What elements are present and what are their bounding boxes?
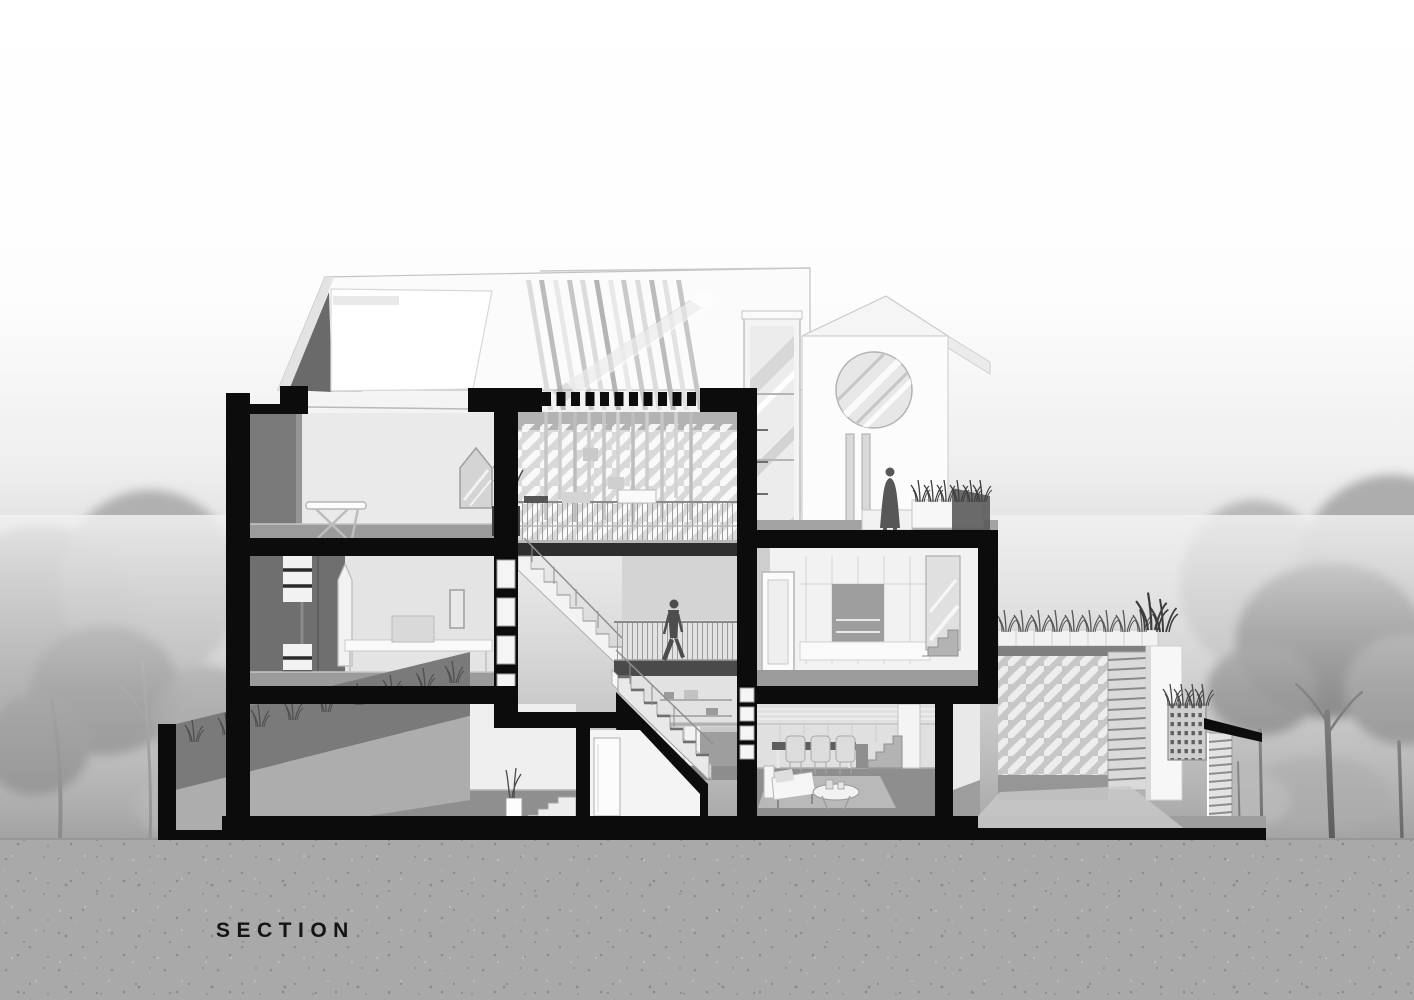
terrace-glass-panel — [952, 488, 990, 536]
section-drawing — [0, 0, 1414, 1000]
tv-niche — [832, 584, 884, 642]
ground — [0, 838, 1414, 1000]
pendant-box — [608, 477, 624, 489]
gate-post — [1208, 733, 1232, 824]
bridge-bench — [524, 496, 548, 503]
mid-slab-right — [756, 686, 998, 704]
pendant-box — [583, 448, 598, 461]
roof-eave-block — [280, 386, 308, 414]
mid-slab-left — [226, 538, 518, 556]
architectural-section-stage: SECTION — [0, 0, 1414, 1000]
bridge-gray-box — [562, 492, 590, 503]
lower-slab-left — [226, 686, 512, 704]
hall-left-wall — [576, 728, 590, 820]
dressing-room — [756, 548, 980, 686]
louver-beam-dashes — [542, 392, 696, 406]
section-title: SECTION — [216, 919, 355, 943]
dining-right-wall — [935, 704, 953, 820]
tv-panel — [392, 616, 434, 642]
base-slab — [222, 816, 978, 840]
roof-beam-right — [700, 388, 757, 412]
perforated-screen — [1168, 704, 1206, 760]
wall-frame — [450, 590, 464, 628]
bridge-white-box — [618, 490, 656, 503]
yard-wall-post — [158, 724, 176, 840]
roof-beam-left — [468, 388, 542, 412]
tower-slot-window — [846, 434, 854, 522]
hall-ceiling-slab — [494, 712, 622, 728]
garage-louver-door — [1108, 652, 1146, 790]
tower-slot-window — [862, 434, 870, 522]
skylight-top-band — [333, 296, 399, 305]
dining-living-room — [756, 704, 935, 816]
right-exterior-wall-upper — [978, 530, 998, 692]
terrace-slab — [756, 530, 998, 548]
attic-bedroom — [250, 413, 494, 538]
side-porch — [953, 704, 980, 816]
left-exterior-wall — [226, 393, 250, 830]
